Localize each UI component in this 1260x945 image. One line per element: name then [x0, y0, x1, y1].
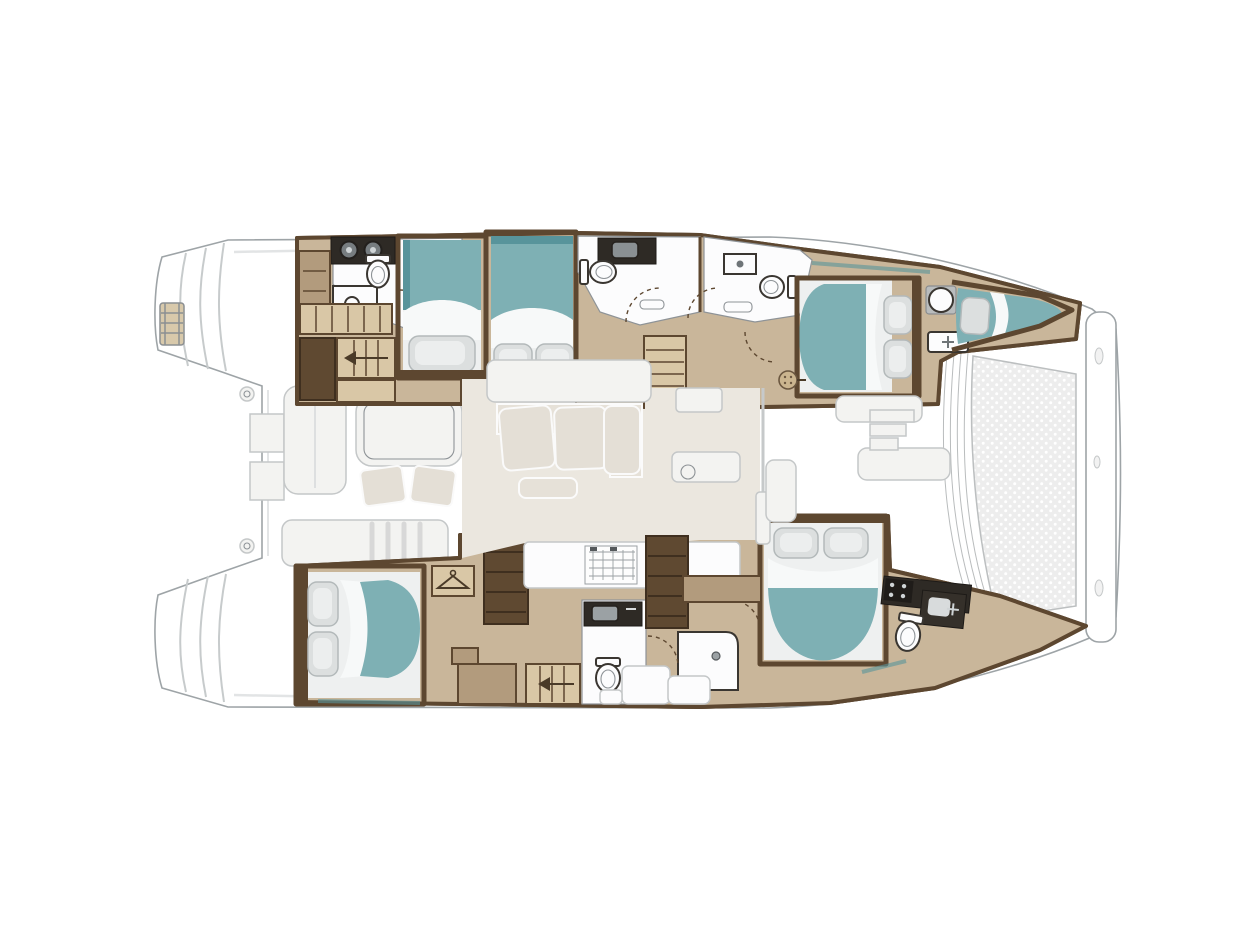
companionway-stairs	[526, 664, 580, 704]
double-bed	[486, 232, 576, 378]
bed-cover	[799, 284, 866, 390]
sink-highlight	[346, 247, 352, 253]
wardrobe	[300, 304, 392, 334]
toilet-icon	[760, 276, 796, 298]
pillow-highlight	[780, 533, 812, 552]
port-mid-head-2	[688, 237, 812, 322]
single-bed	[398, 236, 486, 378]
wardrobe-hanger-icon	[432, 566, 474, 596]
round-sink-icon	[929, 288, 953, 312]
stove-icon	[883, 578, 913, 603]
port-aft-cabin	[398, 232, 576, 378]
sofa-cushion	[498, 405, 555, 471]
winch	[240, 387, 254, 401]
sideboard	[487, 360, 651, 402]
bed-sheet	[491, 308, 573, 348]
boarding-ladder-icon	[160, 303, 184, 345]
sink-icon	[612, 242, 638, 258]
bed-cover-edge	[403, 240, 410, 310]
lower-cabinet	[300, 338, 335, 400]
desk	[458, 664, 516, 704]
sink-icon	[592, 606, 618, 621]
floorplan-canvas	[0, 0, 1260, 945]
pillow	[960, 297, 990, 335]
chaise	[604, 406, 640, 474]
hull-window	[318, 701, 420, 703]
pillow-highlight	[415, 341, 465, 365]
cockpit-dining-table	[356, 396, 462, 466]
side-table	[452, 648, 478, 664]
cockpit-chair	[410, 465, 457, 506]
sink-highlight	[370, 247, 376, 253]
sofa-cushion	[554, 406, 608, 470]
side-seat	[766, 460, 796, 522]
bed-sheet	[403, 300, 481, 340]
pillow-highlight	[889, 346, 906, 372]
sink-drain	[737, 261, 744, 268]
bench-seat	[672, 452, 740, 482]
catamaran-floorplan	[0, 0, 1260, 945]
locker	[250, 414, 284, 452]
toilet-icon	[580, 260, 616, 284]
pillow-highlight	[313, 588, 332, 619]
bench-seat	[858, 448, 950, 480]
locker	[250, 462, 284, 500]
counter	[668, 676, 710, 704]
toilet-icon	[596, 658, 620, 692]
bed-cover	[403, 240, 481, 310]
headboard	[298, 568, 308, 702]
pillow-highlight	[313, 638, 332, 669]
pillow-highlight	[830, 533, 862, 552]
counter	[622, 666, 670, 704]
cockpit-chair	[360, 465, 407, 506]
counter	[600, 690, 622, 704]
crossbeam-fitting	[1095, 348, 1103, 364]
winch	[240, 539, 254, 553]
shelf-column	[646, 536, 688, 628]
crossbeam-fitting	[1095, 580, 1103, 596]
sink-basin	[927, 597, 951, 617]
pillow-highlight	[889, 302, 906, 328]
ottoman	[519, 478, 577, 498]
toilet-icon	[366, 255, 390, 288]
shower-drain	[712, 652, 720, 660]
cabinet	[676, 388, 722, 412]
crossbeam-fitting	[1094, 456, 1100, 468]
stair-landing	[337, 380, 395, 402]
stove-grid-icon	[585, 546, 637, 584]
nav-counter	[683, 576, 761, 602]
